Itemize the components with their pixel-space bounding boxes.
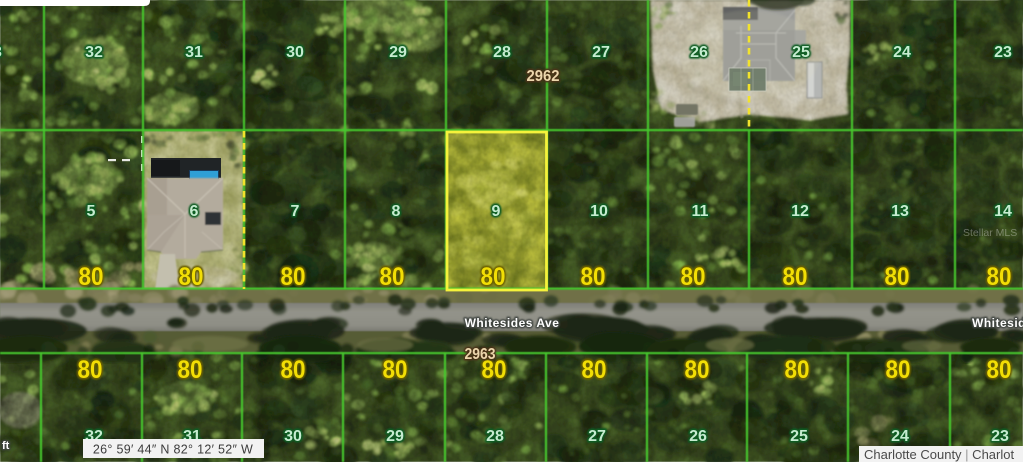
svg-text:80: 80: [681, 263, 706, 291]
svg-text:80: 80: [79, 263, 104, 291]
svg-text:10: 10: [590, 203, 608, 220]
svg-text:80: 80: [582, 356, 607, 384]
svg-text:29: 29: [389, 44, 407, 61]
svg-text:Whitesides Ave: Whitesides Ave: [465, 316, 560, 330]
svg-text:ft: ft: [2, 440, 10, 452]
svg-text:6: 6: [190, 203, 199, 220]
svg-text:80: 80: [581, 263, 606, 291]
svg-text:28: 28: [486, 428, 504, 445]
svg-text:11: 11: [692, 203, 709, 220]
svg-text:5: 5: [87, 203, 96, 220]
svg-text:80: 80: [281, 356, 306, 384]
svg-text:80: 80: [885, 263, 910, 291]
svg-text:7: 7: [291, 203, 300, 220]
svg-text:80: 80: [785, 356, 810, 384]
svg-text:80: 80: [281, 263, 306, 291]
svg-text:28: 28: [493, 44, 511, 61]
svg-text:24: 24: [891, 428, 909, 445]
svg-text:33: 33: [0, 44, 2, 61]
svg-text:80: 80: [685, 356, 710, 384]
svg-text:80: 80: [78, 356, 103, 384]
svg-text:24: 24: [893, 44, 911, 61]
svg-text:Charlotte County | Charlot: Charlotte County | Charlot: [864, 447, 1014, 462]
svg-text:30: 30: [284, 428, 302, 445]
svg-text:29: 29: [386, 428, 404, 445]
svg-text:25: 25: [790, 428, 808, 445]
svg-text:30: 30: [286, 44, 304, 61]
svg-text:32: 32: [85, 44, 103, 61]
svg-text:Whitesides A: Whitesides A: [972, 316, 1023, 330]
svg-text:2963: 2963: [465, 346, 496, 363]
svg-text:13: 13: [891, 203, 909, 220]
svg-text:80: 80: [987, 263, 1012, 291]
svg-text:80: 80: [481, 263, 506, 291]
svg-text:23: 23: [991, 428, 1009, 445]
svg-text:31: 31: [185, 44, 203, 61]
svg-text:27: 27: [588, 428, 606, 445]
svg-text:80: 80: [179, 263, 204, 291]
svg-text:23: 23: [994, 44, 1012, 61]
svg-text:25: 25: [792, 44, 810, 61]
svg-text:80: 80: [178, 356, 203, 384]
svg-text:26: 26: [690, 44, 708, 61]
svg-text:27: 27: [592, 44, 610, 61]
svg-text:80: 80: [987, 356, 1012, 384]
svg-text:9: 9: [492, 203, 501, 220]
svg-text:12: 12: [791, 203, 809, 220]
svg-text:80: 80: [383, 356, 408, 384]
svg-text:80: 80: [886, 356, 911, 384]
svg-text:14: 14: [994, 203, 1012, 220]
svg-text:26: 26: [689, 428, 707, 445]
svg-text:2962: 2962: [527, 68, 560, 85]
svg-text:Stellar MLS: Stellar MLS: [963, 227, 1017, 239]
svg-text:8: 8: [392, 203, 401, 220]
svg-text:80: 80: [783, 263, 808, 291]
svg-text:26° 59′ 44″ N 82° 12′ 52″ W: 26° 59′ 44″ N 82° 12′ 52″ W: [93, 443, 253, 457]
svg-text:80: 80: [380, 263, 405, 291]
